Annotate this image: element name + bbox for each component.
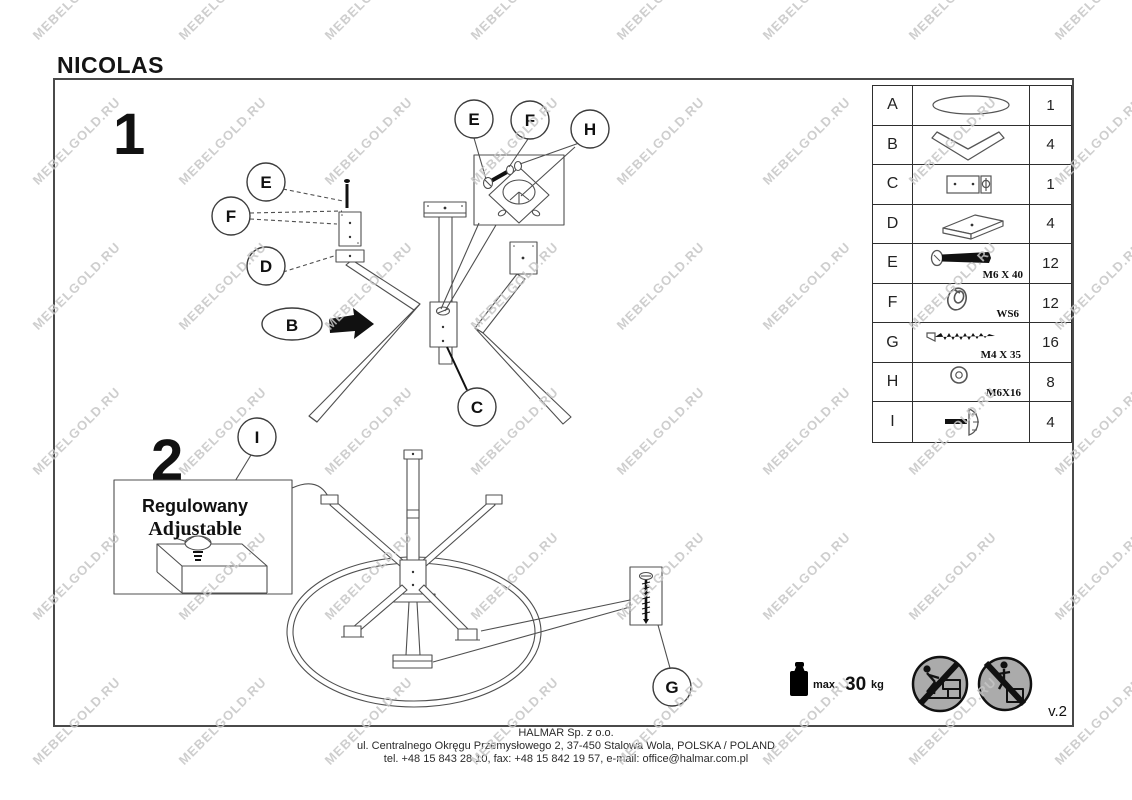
watermark-text: MEBELGOLD.RU (760, 0, 854, 43)
label-f-top: F (525, 111, 535, 130)
part-letter: A (873, 86, 913, 125)
part-letter: I (873, 402, 913, 442)
part-qty: 8 (1029, 363, 1071, 402)
spring-washer-icon: WS6 (915, 284, 1027, 322)
part-qty: 16 (1029, 323, 1071, 362)
label-d-left: D (260, 257, 272, 276)
part-letter: G (873, 323, 913, 362)
center-bracket-c (430, 302, 457, 347)
part-size-label: M6X16 (986, 387, 1021, 399)
left-leg (309, 260, 420, 422)
table-row: B 4 (873, 126, 1071, 166)
table-row: C 1 (873, 165, 1071, 205)
part-size-label: M4 X 35 (981, 349, 1022, 361)
instruction-sheet: { "title": "NICOLAS", "steps": { "one": … (0, 0, 1132, 800)
footer: HALMAR Sp. z o.o. ul. Centralnego Okręgu… (0, 727, 1132, 766)
part-letter: D (873, 205, 913, 244)
weight-unit: kg (871, 679, 884, 691)
label-g: G (665, 678, 678, 697)
footer-address: ul. Centralnego Okręgu Przemysłowego 2, … (0, 740, 1132, 753)
footer-company: HALMAR Sp. z o.o. (0, 727, 1132, 740)
label-e-top: E (468, 110, 479, 129)
mounting-plate-icon (915, 206, 1027, 242)
step-1-number: 1 (113, 102, 145, 167)
parts-table: A 1 B 4 C 1 D 4 E (872, 85, 1072, 443)
part-size-label: M6 X 40 (983, 269, 1024, 281)
callout-text-english: Adjustable (148, 518, 241, 540)
table-row: I 4 (873, 402, 1071, 442)
watermark-text: MEBELGOLD.RU (468, 0, 562, 43)
weight-icon (790, 662, 808, 696)
label-circles-left (212, 163, 285, 285)
table-row: G M4 X 35 16 (873, 323, 1071, 363)
v-leg-icon (915, 127, 1027, 163)
part-letter: E (873, 244, 913, 283)
part-qty: 1 (1029, 165, 1071, 204)
footer-contact: tel. +48 15 843 28 10, fax: +48 15 842 1… (0, 753, 1132, 766)
watermark-text: MEBELGOLD.RU (176, 0, 270, 43)
weight-value: 30 (845, 674, 866, 695)
part-letter: B (873, 126, 913, 165)
table-row: D 4 (873, 205, 1071, 245)
part-qty: 12 (1029, 244, 1071, 283)
screw-detail-box (630, 567, 662, 625)
adjustable-foot-icon (915, 404, 1027, 440)
part-qty: 1 (1029, 86, 1071, 125)
part-qty: 4 (1029, 402, 1071, 442)
table-row: H M6X16 8 (873, 363, 1071, 403)
weight-prefix: max. (813, 679, 838, 691)
mounting-plate-right (510, 242, 537, 274)
watermark-text: MEBELGOLD.RU (906, 0, 1000, 43)
table-row: A 1 (873, 86, 1071, 126)
assembled-base (287, 450, 541, 707)
label-f-left: F (226, 207, 236, 226)
bolt-icon: M6 X 40 (915, 244, 1027, 282)
label-c: C (471, 398, 483, 417)
part-qty: 4 (1029, 205, 1071, 244)
label-b: B (286, 316, 298, 335)
arrow-icon (329, 308, 374, 339)
watermark-text: MEBELGOLD.RU (322, 0, 416, 43)
table-top-ellipse-icon (915, 87, 1027, 123)
page-title: NICOLAS (57, 52, 164, 79)
left-bracket-assembly (336, 179, 364, 262)
part-letter: C (873, 165, 913, 204)
part-qty: 4 (1029, 126, 1071, 165)
part-letter: H (873, 363, 913, 402)
part-size-label: WS6 (996, 308, 1019, 320)
part-letter: F (873, 284, 913, 323)
watermark-text: MEBELGOLD.RU (30, 0, 124, 43)
label-h-top: H (584, 120, 596, 139)
label-e-left: E (260, 173, 271, 192)
watermark-text: MEBELGOLD.RU (1052, 0, 1132, 43)
hub-detail-box (474, 155, 564, 225)
no-climbing-icon (913, 657, 967, 711)
version-text: v.2 (1048, 703, 1067, 720)
watermark-text: MEBELGOLD.RU (614, 0, 708, 43)
table-row: F WS6 12 (873, 284, 1071, 324)
wood-screw-icon: M4 X 35 (915, 324, 1027, 362)
no-standing-icon (979, 658, 1031, 710)
label-i: I (255, 428, 260, 447)
table-row: E M6 X 40 12 (873, 244, 1071, 284)
flat-washer-icon: M6X16 (915, 363, 1027, 401)
center-bracket-icon (915, 166, 1027, 202)
callout-text-polish: Regulowany (142, 496, 248, 516)
part-qty: 12 (1029, 284, 1071, 323)
